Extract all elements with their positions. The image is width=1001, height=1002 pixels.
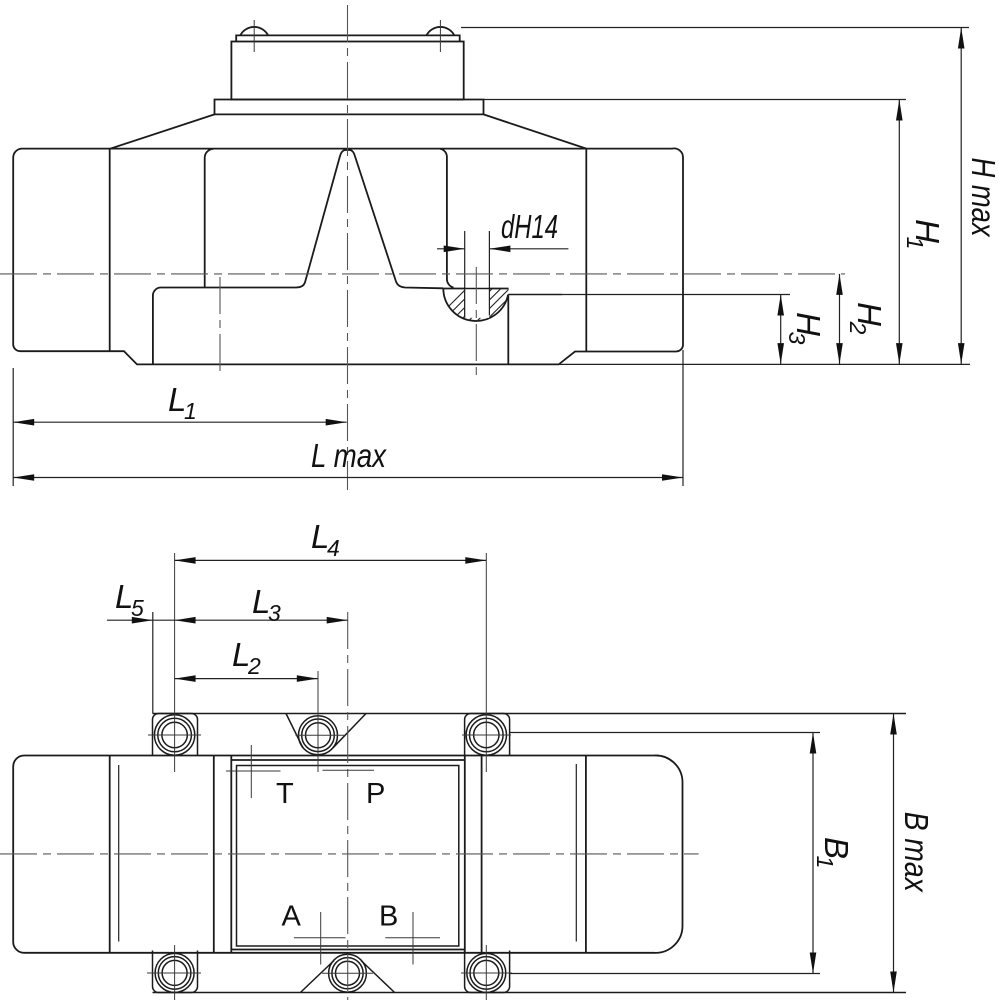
svg-text:1: 1 [902, 237, 928, 250]
svg-text:dH14: dH14 [501, 208, 558, 245]
svg-text:T: T [276, 778, 294, 810]
svg-text:3: 3 [784, 332, 810, 345]
svg-text:B: B [379, 901, 398, 933]
svg-text:L max: L max [311, 437, 387, 474]
svg-text:B max: B max [898, 812, 935, 893]
svg-text:3: 3 [268, 600, 281, 626]
svg-text:4: 4 [327, 535, 340, 561]
svg-text:5: 5 [131, 595, 144, 621]
svg-text:2: 2 [247, 653, 261, 679]
svg-text:1: 1 [184, 398, 197, 424]
svg-text:2: 2 [845, 321, 871, 335]
svg-text:P: P [366, 778, 385, 810]
svg-text:1: 1 [812, 856, 838, 869]
svg-text:H max: H max [965, 158, 1001, 238]
svg-text:A: A [282, 901, 302, 933]
